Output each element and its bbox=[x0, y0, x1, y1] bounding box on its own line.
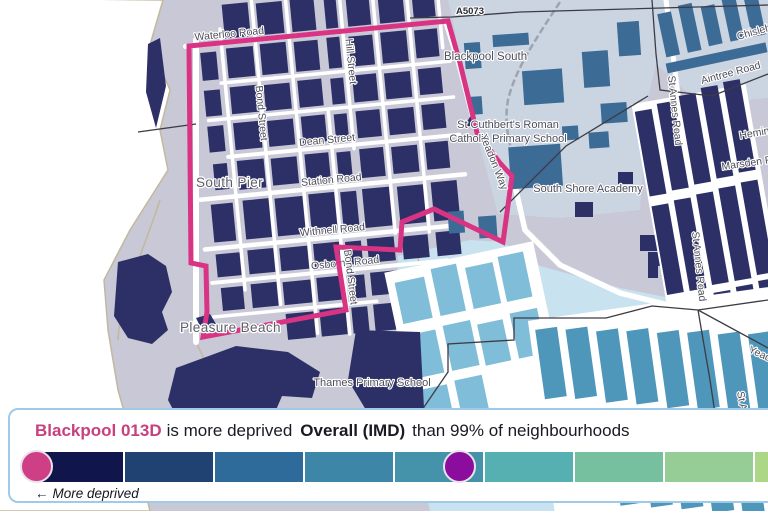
scale-segment bbox=[665, 452, 753, 482]
scale-segment bbox=[575, 452, 663, 482]
poi-label-pleasure-beach: Pleasure Beach bbox=[180, 320, 281, 335]
scale-caption-text: More deprived bbox=[53, 486, 139, 501]
scale-segment bbox=[125, 452, 213, 482]
scale-caption: ←More deprived bbox=[35, 486, 139, 501]
scale-segment bbox=[755, 452, 768, 482]
metric-name: Overall (IMD) bbox=[300, 421, 405, 440]
school-label-line1: St Cuthbert's Roman bbox=[457, 119, 559, 131]
school-label-academy: South Shore Academy bbox=[533, 183, 643, 195]
poi-label-south-pier: South Pier bbox=[196, 175, 263, 190]
scale-segment bbox=[215, 452, 303, 482]
sentence-end: than 99% of neighbourhoods bbox=[412, 421, 629, 440]
sentence-mid: is more deprived bbox=[167, 421, 293, 440]
station-label: Blackpool South bbox=[444, 51, 527, 63]
area-position-marker bbox=[20, 450, 53, 483]
school-label-thames: Thames Primary School bbox=[313, 377, 430, 389]
area-name: Blackpool 013D bbox=[35, 421, 162, 440]
road-number-label: A5073 bbox=[456, 6, 484, 17]
scale-segment bbox=[305, 452, 393, 482]
scale-segment bbox=[485, 452, 573, 482]
value-position-marker bbox=[443, 450, 476, 483]
left-arrow-icon: ← bbox=[35, 486, 49, 501]
deprivation-scale-bar bbox=[35, 452, 768, 482]
deprivation-info-card: Blackpool 013Dis more deprivedOverall (I… bbox=[8, 408, 768, 503]
school-label-line2: Catholic Primary School bbox=[449, 133, 566, 145]
deprivation-sentence: Blackpool 013Dis more deprivedOverall (I… bbox=[35, 421, 630, 441]
